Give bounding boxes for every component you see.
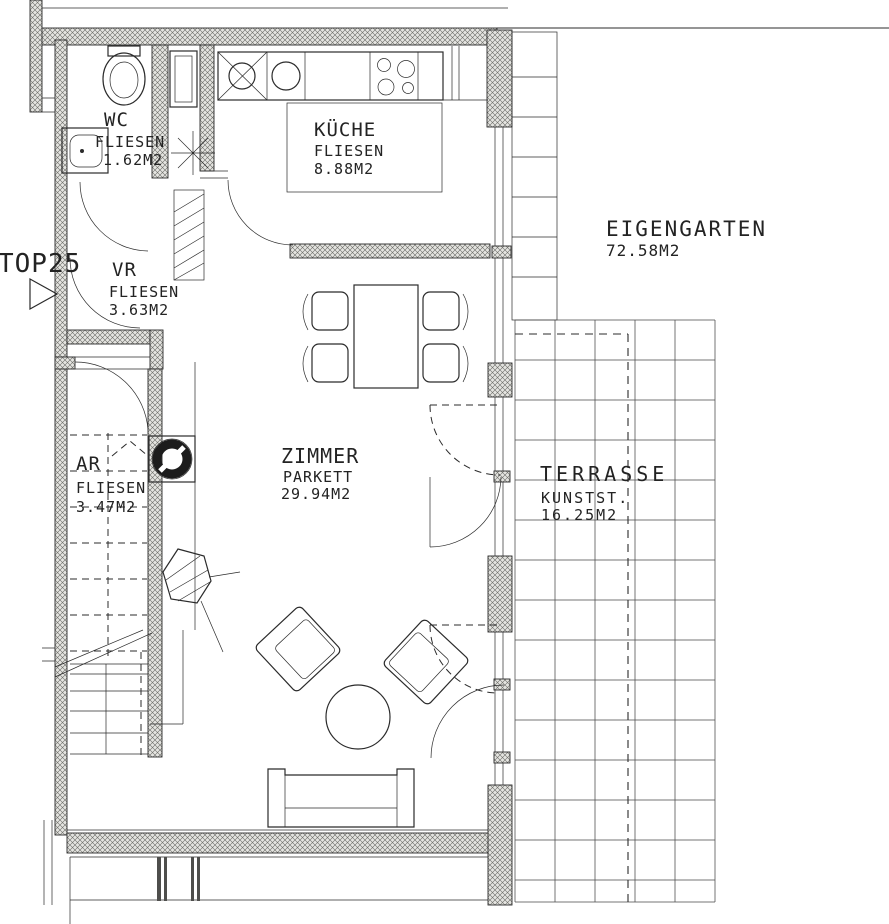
stair-direction-chevron: [112, 441, 148, 456]
dining-chair: [423, 292, 459, 330]
stove-hatch: [166, 556, 210, 601]
stove-burner: [378, 79, 394, 95]
kitchen-counter: [218, 52, 443, 100]
dining-chair: [312, 292, 348, 330]
lower-unit-jamb: [157, 857, 161, 901]
wall-pillar: [487, 30, 512, 127]
room-label-eigengarten: EIGENGARTEN: [606, 217, 767, 241]
room-area-wc: 1.62M2: [103, 151, 163, 169]
room-area-kueche: 8.88M2: [314, 160, 374, 178]
terrace-grid-horizontals: [515, 320, 715, 902]
terrace-grid-verticals: [515, 320, 715, 902]
room-area-ar: 3.47M2: [76, 498, 136, 516]
room-label-vr: VR: [112, 259, 137, 281]
tall-cupboard: [170, 51, 197, 107]
room-label-zimmer: ZIMMER: [281, 444, 359, 468]
stair-treads: [70, 664, 148, 754]
room-label-terrasse: TERRASSE: [540, 462, 668, 486]
kitchen-door-jamb: [200, 171, 228, 178]
left-wall: [55, 40, 67, 835]
garden-masonry-strip: [512, 32, 557, 320]
kitchen-bottom-wall: [290, 244, 490, 258]
wall-pillar: [488, 556, 512, 632]
room-area-eigengarten: 72.58M2: [606, 241, 680, 260]
terrace-door-swing-dashed: [430, 625, 498, 693]
top-wall: [38, 28, 497, 45]
room-floor-vr: FLIESEN: [109, 283, 179, 301]
sink-drain: [80, 149, 84, 153]
glazing-junction: [494, 679, 510, 690]
stair-break-lines: [55, 630, 152, 677]
sink-unit-cross: [218, 52, 267, 100]
left-wall-extension: [44, 820, 52, 905]
room-floor-ar: FLIESEN: [76, 479, 146, 497]
glazed-wall: [443, 30, 512, 905]
terrace-grid: [515, 320, 715, 902]
terrace-door-swing: [430, 477, 501, 547]
room-floor-terrasse: KUNSTST.: [541, 489, 629, 507]
stove-burner: [403, 83, 414, 94]
glazing-junction: [494, 752, 510, 763]
floor-plan-page: TOP25 WC FLIESEN 1.62M2 KÜCHE FLIESEN 8.…: [0, 0, 889, 924]
sofa: [268, 769, 414, 827]
terrace-door-swing-dashed: [430, 405, 500, 475]
lower-unit: [70, 857, 488, 924]
dining-chair: [312, 344, 348, 382]
floor-plan-drawing: TOP25 WC FLIESEN 1.62M2 KÜCHE FLIESEN 8.…: [0, 0, 889, 924]
shaft-louvre-icon: [174, 190, 204, 280]
tiled-stove-icon: [163, 549, 211, 603]
lower-unit-outline: [70, 857, 488, 924]
glazing-junction: [492, 246, 511, 258]
wc-door-swing: [80, 182, 148, 251]
stove-lamp-symbol: [163, 549, 240, 652]
terrace-door-swing: [431, 685, 504, 758]
vr-bottom-wall: [67, 330, 150, 344]
glazing-junction: [494, 471, 510, 482]
ar-top-wall: [55, 357, 75, 369]
room-area-vr: 3.63M2: [109, 301, 169, 319]
dining-table: [354, 285, 418, 388]
armchair: [382, 618, 470, 706]
round-table: [326, 685, 390, 749]
toilet-tank: [108, 46, 140, 56]
room-floor-kueche: FLIESEN: [314, 142, 384, 160]
kitchen-basin-icon: [272, 62, 300, 90]
wall-pillar: [488, 785, 512, 905]
wall-stub: [150, 330, 163, 369]
masonry-joints: [512, 77, 557, 277]
kitchen-left-wall: [200, 45, 214, 171]
unit-marker: TOP25: [0, 249, 81, 309]
room-area-zimmer: 29.94M2: [281, 485, 351, 503]
tall-cupboard-inner: [175, 56, 192, 102]
dining-chair: [423, 344, 459, 382]
lower-unit-jamb: [197, 857, 200, 901]
wall-pillar: [488, 363, 512, 397]
left-wall-upper: [30, 0, 42, 112]
room-area-terrasse: 16.25M2: [541, 506, 618, 524]
dining-set: [303, 285, 468, 388]
room-floor-zimmer: PARKETT: [283, 468, 353, 486]
toilet-bowl: [110, 62, 138, 98]
lounge-set: [254, 605, 470, 827]
entry-arrow-icon: [30, 279, 57, 309]
counter-dividers: [267, 52, 418, 100]
room-label-wc: WC: [104, 109, 129, 131]
lower-unit-jamb: [164, 857, 167, 901]
room-label-kueche: KÜCHE: [314, 118, 376, 141]
room-label-ar: AR: [76, 453, 101, 475]
stove-burner: [378, 59, 391, 72]
stove-burner: [398, 61, 415, 78]
lower-unit-jamb: [191, 857, 194, 901]
room-labels: WC FLIESEN 1.62M2 KÜCHE FLIESEN 8.88M2 V…: [76, 109, 767, 524]
kitchen-window-stub: [443, 46, 488, 100]
bottom-wall: [67, 833, 512, 853]
ar-right-wall: [148, 369, 162, 757]
glazing-panel: [495, 127, 503, 363]
left-window-ticks-bottom: [42, 648, 55, 661]
toilet-icon: [103, 53, 145, 105]
room-floor-wc: FLIESEN: [95, 133, 165, 151]
unit-label: TOP25: [0, 249, 81, 279]
armchair: [254, 605, 342, 693]
ar-door-swing: [75, 362, 148, 430]
kitchen-door-swing: [228, 180, 293, 245]
